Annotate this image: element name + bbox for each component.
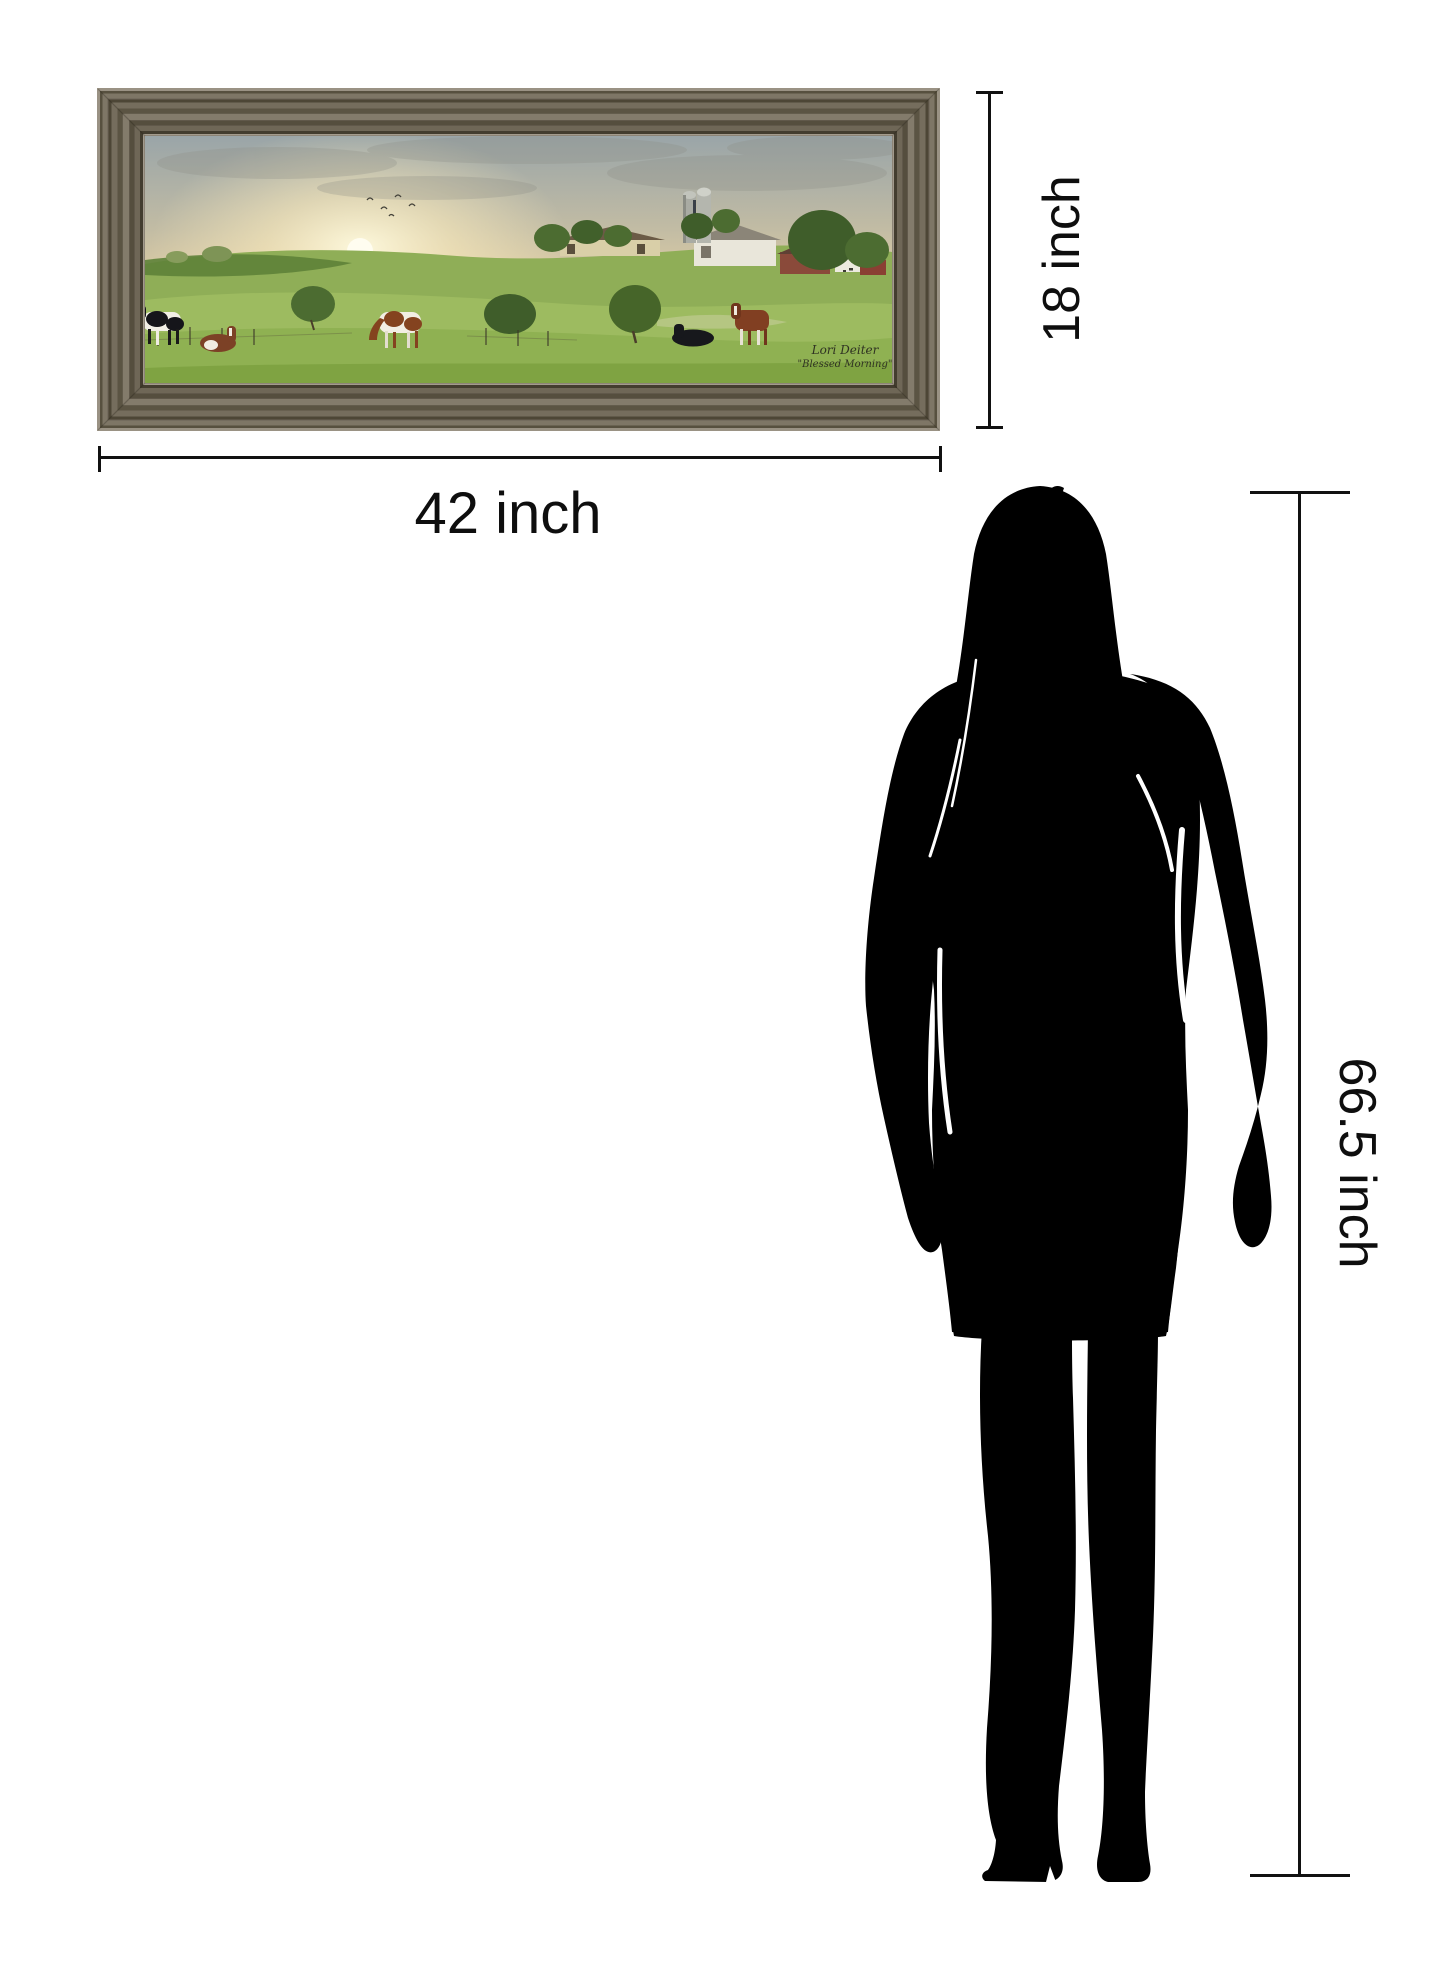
width-dimension-label: 42 inch xyxy=(414,485,601,543)
woman-silhouette xyxy=(840,480,1280,1890)
height-dimension-top-cap xyxy=(976,91,1003,94)
artist-signature: Lori Deiter xyxy=(811,343,880,357)
width-dimension-left-cap xyxy=(98,446,101,472)
width-dimension-right-cap xyxy=(939,446,942,472)
foreground-grass xyxy=(145,362,892,383)
height-dimension-line xyxy=(988,92,991,429)
person-dimension-label: 66.5 inch xyxy=(1331,1057,1383,1268)
silhouette-right-leg xyxy=(1087,1330,1158,1882)
art-print-scene: Lori Deiter "Blessed Morning" xyxy=(135,128,907,383)
silhouette-skirt xyxy=(940,1085,1182,1341)
product-size-comparison: Lori Deiter "Blessed Morning" 18 inch 42… xyxy=(0,0,1445,1973)
silhouette-left-leg xyxy=(980,1328,1076,1882)
framed-artwork: Lori Deiter "Blessed Morning" xyxy=(97,88,940,431)
artwork-title: "Blessed Morning" xyxy=(798,359,893,370)
person-dimension-line xyxy=(1298,492,1301,1877)
woman-silhouette-svg xyxy=(840,480,1280,1890)
height-dimension-label: 18 inch xyxy=(1036,175,1088,343)
width-dimension-line xyxy=(99,456,941,459)
height-dimension-bottom-cap xyxy=(976,426,1003,429)
framed-artwork-svg: Lori Deiter "Blessed Morning" xyxy=(97,88,940,431)
right-wrist-gap xyxy=(1192,1050,1214,1180)
